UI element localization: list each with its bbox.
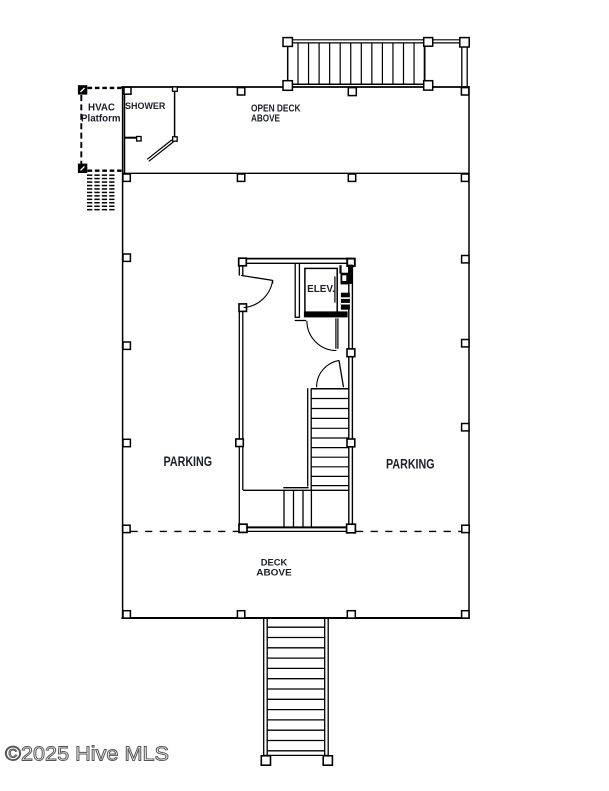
svg-text:ELEV.: ELEV. — [307, 284, 335, 295]
svg-text:SHOWER: SHOWER — [125, 100, 166, 111]
svg-text:©2025 Hive MLS: ©2025 Hive MLS — [5, 744, 169, 766]
svg-text:PARKING: PARKING — [386, 456, 435, 471]
svg-text:ABOVE: ABOVE — [256, 567, 292, 577]
svg-text:HVAC: HVAC — [88, 102, 115, 113]
svg-text:ABOVE: ABOVE — [251, 114, 280, 125]
svg-text:PARKING: PARKING — [164, 454, 213, 469]
svg-text:Platform: Platform — [81, 114, 121, 125]
svg-text:DECK: DECK — [261, 558, 288, 568]
